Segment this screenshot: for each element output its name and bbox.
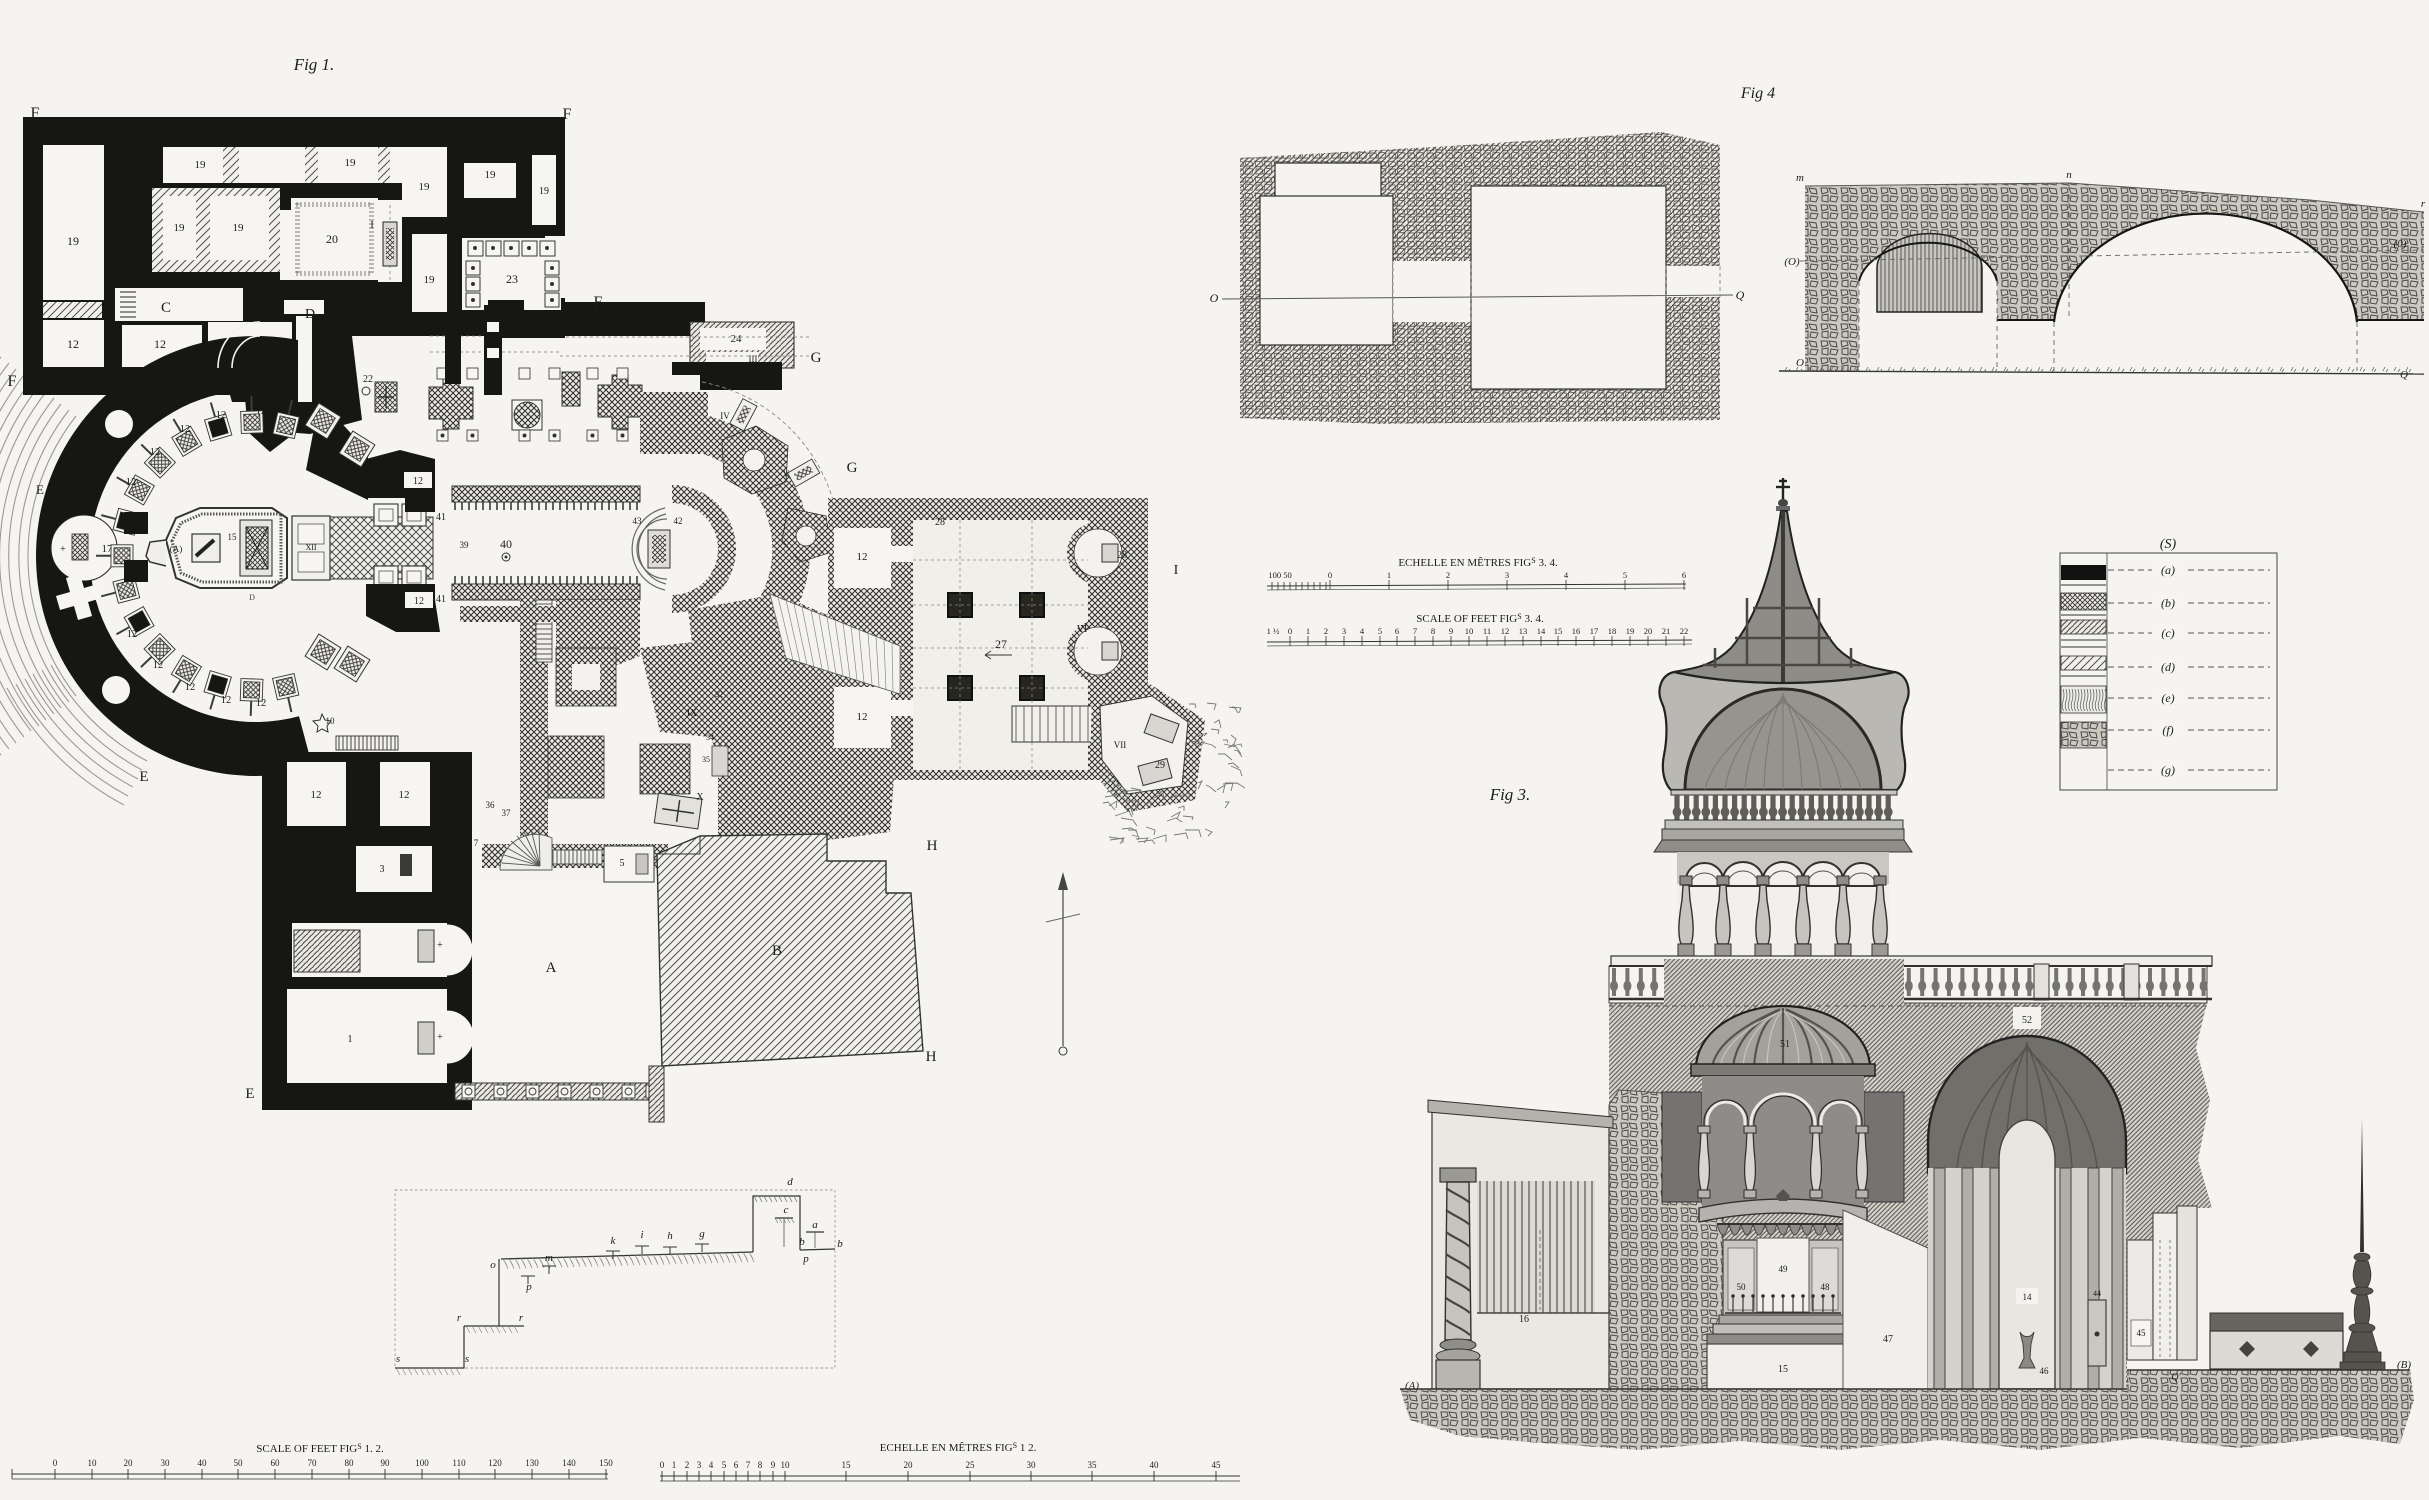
svg-text:30: 30 — [161, 1458, 171, 1468]
svg-text:O: O — [1210, 291, 1219, 305]
svg-text:5: 5 — [1623, 570, 1627, 580]
svg-text:p: p — [525, 1281, 532, 1293]
svg-text:11: 11 — [1483, 626, 1491, 636]
svg-text:+: + — [60, 544, 66, 555]
svg-text:12: 12 — [127, 629, 138, 640]
svg-text:6: 6 — [1395, 626, 1399, 636]
svg-text:3: 3 — [1505, 570, 1509, 580]
svg-text:19: 19 — [485, 169, 497, 181]
svg-text:XII: XII — [305, 543, 316, 552]
svg-text:19: 19 — [233, 222, 245, 234]
svg-text:d: d — [787, 1176, 793, 1188]
svg-text:Fig 4: Fig 4 — [1740, 85, 1775, 102]
svg-text:12: 12 — [256, 406, 267, 417]
svg-text:VII: VII — [1114, 740, 1127, 750]
svg-text:25: 25 — [966, 1460, 976, 1470]
svg-text:15: 15 — [1778, 1364, 1788, 1375]
svg-text:12: 12 — [256, 698, 267, 709]
svg-text:110: 110 — [452, 1458, 466, 1468]
svg-text:0: 0 — [53, 1458, 58, 1468]
svg-text:(O): (O) — [1784, 256, 1800, 268]
svg-text:1: 1 — [1387, 570, 1391, 580]
svg-text:I: I — [1174, 563, 1179, 578]
svg-text:70: 70 — [308, 1458, 318, 1468]
svg-text:3: 3 — [380, 864, 385, 875]
svg-text:5: 5 — [722, 1460, 727, 1470]
svg-text:G: G — [811, 350, 822, 366]
svg-text:r: r — [457, 1312, 462, 1324]
svg-text:150: 150 — [599, 1458, 613, 1468]
svg-text:14: 14 — [1537, 626, 1546, 636]
svg-text:12: 12 — [857, 551, 868, 563]
svg-text:46: 46 — [2040, 1366, 2050, 1376]
svg-text:130: 130 — [525, 1458, 539, 1468]
svg-text:42: 42 — [674, 516, 683, 526]
svg-text:19: 19 — [419, 181, 431, 193]
svg-text:22: 22 — [363, 374, 373, 385]
svg-text:32: 32 — [715, 690, 723, 699]
svg-text:H: H — [927, 838, 938, 854]
svg-text:E: E — [36, 482, 44, 497]
svg-text:i: i — [640, 1229, 643, 1241]
svg-text:F: F — [594, 294, 603, 311]
svg-text:8: 8 — [758, 1460, 763, 1470]
svg-text:40: 40 — [198, 1458, 208, 1468]
svg-text:12: 12 — [216, 410, 227, 421]
svg-text:9: 9 — [771, 1460, 776, 1470]
svg-text:D: D — [249, 593, 255, 602]
svg-text:p: p — [802, 1253, 809, 1265]
svg-text:I: I — [370, 220, 373, 231]
svg-text:2: 2 — [1324, 626, 1328, 636]
svg-text:II: II — [352, 386, 358, 396]
svg-text:40: 40 — [1150, 1460, 1160, 1470]
svg-text:37: 37 — [502, 808, 512, 818]
svg-text:19: 19 — [539, 186, 549, 197]
svg-text:O: O — [1796, 357, 1804, 369]
svg-text:10: 10 — [1465, 626, 1474, 636]
svg-text:s: s — [465, 1353, 469, 1365]
svg-text:2: 2 — [1446, 570, 1450, 580]
svg-text:20: 20 — [904, 1460, 914, 1470]
svg-text:2: 2 — [685, 1460, 690, 1470]
svg-text:b: b — [799, 1236, 805, 1248]
svg-text:12: 12 — [154, 337, 166, 351]
svg-text:19: 19 — [424, 274, 436, 286]
svg-text:a: a — [812, 1219, 818, 1231]
svg-text:40: 40 — [500, 537, 512, 551]
svg-text:41: 41 — [436, 512, 446, 523]
svg-text:1 ½: 1 ½ — [1267, 626, 1280, 636]
svg-text:13: 13 — [1519, 626, 1528, 636]
svg-text:(c): (c) — [2161, 626, 2174, 640]
svg-text:28: 28 — [1117, 550, 1127, 561]
svg-text:5: 5 — [1378, 626, 1382, 636]
svg-text:0: 0 — [1288, 626, 1292, 636]
svg-text:4: 4 — [709, 1460, 714, 1470]
svg-text:12: 12 — [150, 447, 161, 458]
svg-text:7: 7 — [1413, 626, 1417, 636]
svg-text:E: E — [139, 769, 148, 785]
svg-text:(g): (g) — [2161, 763, 2175, 777]
svg-text:n: n — [2066, 169, 2072, 181]
svg-text:F: F — [563, 106, 572, 123]
svg-text:r: r — [519, 1312, 524, 1324]
svg-text:18: 18 — [1608, 626, 1617, 636]
svg-text:12: 12 — [413, 476, 423, 487]
svg-text:100: 100 — [415, 1458, 429, 1468]
svg-text:16: 16 — [1572, 626, 1581, 636]
svg-text:1: 1 — [1306, 626, 1310, 636]
svg-text:44: 44 — [2093, 1289, 2101, 1298]
svg-text:19: 19 — [67, 234, 79, 248]
svg-text:49: 49 — [1779, 1264, 1789, 1274]
svg-text:39: 39 — [460, 540, 470, 550]
svg-text:SCALE OF FEET FIGS 3. 4.: SCALE OF FEET FIGS 3. 4. — [1416, 612, 1544, 625]
svg-text:22: 22 — [1680, 626, 1689, 636]
svg-text:47: 47 — [1883, 1334, 1893, 1345]
svg-text:1: 1 — [348, 1034, 353, 1045]
svg-text:(f): (f) — [2162, 723, 2173, 737]
svg-text:12: 12 — [1501, 626, 1510, 636]
svg-text:(0): (0) — [2394, 238, 2407, 250]
svg-text:(d): (d) — [2161, 660, 2175, 674]
svg-text:36: 36 — [486, 800, 496, 810]
svg-text:X: X — [696, 792, 704, 803]
svg-text:12: 12 — [67, 337, 79, 351]
svg-text:12: 12 — [311, 789, 322, 801]
svg-text:140: 140 — [562, 1458, 576, 1468]
svg-text:Q: Q — [1736, 288, 1745, 302]
svg-text:19: 19 — [195, 159, 207, 171]
svg-text:60: 60 — [271, 1458, 281, 1468]
svg-text:12: 12 — [185, 682, 196, 693]
svg-text:Fig 3.: Fig 3. — [1489, 785, 1531, 804]
svg-text:23: 23 — [506, 272, 518, 286]
svg-text:12: 12 — [153, 660, 164, 671]
svg-text:6: 6 — [734, 1460, 739, 1470]
svg-text:0: 0 — [660, 1460, 665, 1470]
svg-text:30: 30 — [1027, 1460, 1037, 1470]
svg-text:29: 29 — [1155, 760, 1165, 771]
svg-text:12: 12 — [221, 695, 232, 706]
svg-text:10: 10 — [781, 1460, 791, 1470]
svg-text:6: 6 — [1682, 570, 1686, 580]
svg-text:48: 48 — [1821, 1282, 1831, 1292]
svg-text:(a): (a) — [2161, 563, 2175, 577]
svg-text:50: 50 — [1737, 1282, 1747, 1292]
svg-text:19: 19 — [1626, 626, 1635, 636]
svg-text:g: g — [699, 1228, 705, 1240]
svg-text:34: 34 — [706, 733, 714, 742]
svg-text:E: E — [245, 1086, 254, 1102]
svg-text:21: 21 — [1662, 626, 1671, 636]
svg-text:19: 19 — [174, 222, 186, 234]
svg-text:1: 1 — [672, 1460, 677, 1470]
svg-text:m: m — [545, 1252, 553, 1264]
svg-text:IV: IV — [720, 411, 730, 421]
svg-text:28: 28 — [935, 517, 945, 528]
svg-text:12: 12 — [180, 424, 191, 435]
svg-text:8: 8 — [1431, 626, 1435, 636]
svg-text:15: 15 — [228, 532, 238, 542]
svg-text:c: c — [784, 1204, 789, 1216]
svg-text:Fig 1.: Fig 1. — [293, 55, 335, 74]
svg-text:m: m — [1796, 172, 1804, 184]
svg-text:Q': Q' — [2171, 1372, 2181, 1383]
svg-text:3: 3 — [697, 1460, 702, 1470]
svg-text:s: s — [396, 1353, 400, 1365]
svg-text:3: 3 — [1342, 626, 1346, 636]
svg-text:24: 24 — [731, 333, 743, 345]
svg-text:(S): (S) — [2160, 537, 2177, 552]
svg-text:15: 15 — [1554, 626, 1563, 636]
svg-text:VI: VI — [1077, 624, 1088, 635]
svg-text:+: + — [437, 940, 443, 951]
svg-text:35: 35 — [1088, 1460, 1098, 1470]
svg-text:h: h — [667, 1230, 673, 1242]
svg-text:12: 12 — [857, 711, 868, 723]
svg-text:20: 20 — [1644, 626, 1653, 636]
svg-text:35: 35 — [702, 755, 710, 764]
svg-text:120: 120 — [488, 1458, 502, 1468]
svg-text:IX: IX — [687, 708, 698, 719]
svg-text:45: 45 — [1212, 1460, 1222, 1470]
svg-text:100 50: 100 50 — [1268, 570, 1291, 580]
svg-text:b: b — [837, 1238, 843, 1250]
svg-text:19: 19 — [345, 157, 357, 169]
svg-text:(A): (A) — [170, 544, 183, 554]
svg-text:90: 90 — [381, 1458, 391, 1468]
svg-text:s: s — [2076, 259, 2080, 271]
svg-text:F: F — [31, 105, 40, 122]
svg-text:14: 14 — [2023, 1292, 2033, 1302]
svg-text:H: H — [926, 1049, 937, 1065]
svg-text:0: 0 — [1328, 570, 1332, 580]
svg-text:80: 80 — [345, 1458, 355, 1468]
svg-text:17: 17 — [1590, 626, 1599, 636]
svg-text:r: r — [2421, 198, 2426, 210]
svg-text:51: 51 — [1780, 1039, 1790, 1050]
svg-text:F: F — [8, 373, 17, 390]
svg-text:7: 7 — [746, 1460, 751, 1470]
svg-text:5: 5 — [620, 858, 625, 869]
svg-text:45: 45 — [2137, 1328, 2147, 1338]
svg-text:43: 43 — [633, 516, 643, 526]
svg-text:10: 10 — [88, 1458, 98, 1468]
svg-text:20: 20 — [124, 1458, 134, 1468]
svg-text:o: o — [490, 1259, 496, 1271]
svg-text:Q: Q — [2400, 369, 2408, 381]
svg-text:SCALE OF FEET FIGS 1. 2.: SCALE OF FEET FIGS 1. 2. — [256, 1442, 384, 1455]
svg-text:12: 12 — [399, 789, 410, 801]
svg-text:G: G — [847, 460, 858, 476]
svg-text:(b): (b) — [2161, 596, 2175, 610]
svg-text:50: 50 — [234, 1458, 244, 1468]
svg-text:20: 20 — [326, 232, 338, 246]
svg-text:B: B — [772, 943, 782, 959]
svg-text:41: 41 — [436, 594, 446, 605]
svg-text:V: V — [783, 469, 790, 479]
svg-text:16: 16 — [1519, 1314, 1529, 1325]
svg-text:7: 7 — [474, 838, 479, 848]
svg-text:12: 12 — [414, 596, 424, 607]
svg-text:52: 52 — [2022, 1015, 2032, 1026]
svg-text:9: 9 — [1449, 626, 1453, 636]
svg-text:27: 27 — [995, 637, 1007, 651]
svg-text:15: 15 — [842, 1460, 852, 1470]
svg-text:C: C — [161, 300, 171, 316]
svg-text:12: 12 — [126, 477, 137, 488]
svg-text:A: A — [546, 960, 557, 976]
svg-text:8: 8 — [449, 768, 454, 778]
svg-text:+: + — [437, 1032, 443, 1043]
svg-text:(e): (e) — [2161, 691, 2174, 705]
